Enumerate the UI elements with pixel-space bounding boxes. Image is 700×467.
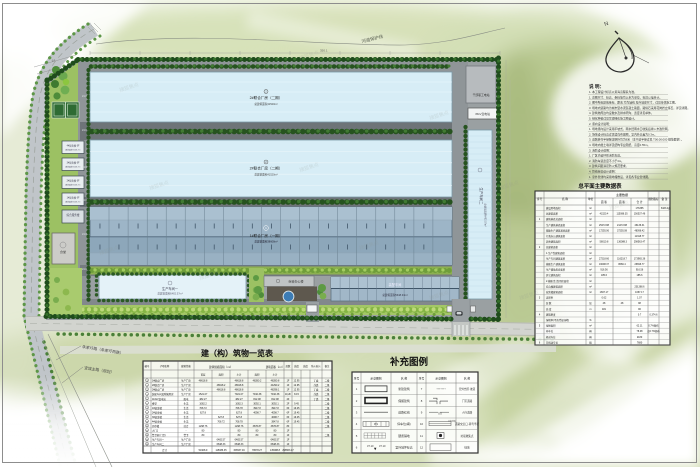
svg-text:m²: m² bbox=[589, 224, 592, 227]
svg-text:生产建筑基底面积: 生产建筑基底面积 bbox=[546, 223, 566, 227]
svg-text:708.72: 708.72 bbox=[199, 407, 207, 410]
svg-text:食堂: 食堂 bbox=[60, 249, 66, 254]
svg-text:m²: m² bbox=[589, 218, 592, 221]
svg-text:2. 竖向设计说明：: 2. 竖向设计说明： bbox=[589, 122, 612, 126]
svg-text:25472.88: 25472.88 bbox=[599, 224, 610, 227]
svg-text:1667.17: 1667.17 bbox=[635, 291, 644, 294]
svg-text:厂区道路: 厂区道路 bbox=[462, 399, 473, 403]
svg-text:156537.46: 156537.46 bbox=[233, 449, 245, 452]
svg-text:人行道路: 人行道路 bbox=[462, 411, 473, 415]
svg-text:2. 图中所标建筑坐标、距离 均为轴线 及外墙皮尺寸，详见单: 2. 图中所标建筑坐标、距离 均为轴线 及外墙皮尺寸，详见单体施工图。 bbox=[589, 101, 678, 105]
svg-text:8680.4: 8680.4 bbox=[618, 263, 626, 266]
svg-text:4. 管线综合设计说明：: 4. 管线综合设计说明： bbox=[589, 170, 617, 174]
svg-text:2#联合厂房: 2#联合厂房 bbox=[152, 388, 165, 392]
svg-text:其他建筑面积: 其他建筑面积 bbox=[546, 240, 561, 244]
svg-text:综合服务楼: 综合服务楼 bbox=[67, 213, 80, 217]
svg-text:总建筑面积41520m²: 总建筑面积41520m² bbox=[254, 173, 277, 177]
svg-text:44290.2: 44290.2 bbox=[271, 384, 280, 387]
svg-text:27218.66: 27218.66 bbox=[599, 257, 610, 260]
svg-text:48096.42: 48096.42 bbox=[635, 229, 646, 232]
svg-text:37.10: 37.10 bbox=[367, 444, 374, 448]
svg-text:生产厂房: 生产厂房 bbox=[181, 379, 191, 383]
svg-text:1. 场地竖向设计采用平坡式，雨水经雨水口收集后排入市政管网: 1. 场地竖向设计采用平坡式，雨水经雨水口收集后排入市政管网。 bbox=[589, 127, 670, 131]
svg-text:装配车间: 装配车间 bbox=[389, 282, 402, 287]
svg-text:单位: 单位 bbox=[588, 197, 594, 201]
svg-text:2. 消防车道宽度不小于4m。: 2. 消防车道宽度不小于4m。 bbox=[589, 159, 624, 163]
svg-text:4. 建筑物周边均设散水及排水明沟，宽度详见单体。: 4. 建筑物周边均设散水及排水明沟，宽度详见单体。 bbox=[589, 111, 654, 115]
svg-text:绿地面积: 绿地面积 bbox=[546, 324, 556, 328]
svg-text:m²: m² bbox=[589, 246, 592, 249]
svg-text:m²: m² bbox=[589, 263, 592, 266]
svg-text:生产厂房: 生产厂房 bbox=[181, 392, 191, 396]
svg-text:示意图例: 示意图例 bbox=[370, 377, 381, 381]
svg-text:9T1: 9T1 bbox=[374, 423, 379, 426]
svg-text:3. 建筑间距满足防火规范要求。: 3. 建筑间距满足防火规范要求。 bbox=[589, 164, 628, 168]
svg-text:停车位: 停车位 bbox=[546, 329, 554, 333]
svg-text:硬质铺地: 硬质铺地 bbox=[398, 433, 410, 438]
svg-text:二级: 二级 bbox=[325, 433, 330, 437]
svg-text:总建筑面积: 总建筑面积 bbox=[546, 245, 559, 249]
svg-text:2.辅助(生活)用房面积: 2.辅助(生活)用房面积 bbox=[546, 279, 569, 283]
svg-text:6848.33: 6848.33 bbox=[217, 443, 226, 446]
svg-text:482.27: 482.27 bbox=[235, 398, 243, 401]
svg-text:19.45: 19.45 bbox=[294, 411, 301, 414]
svg-text:3876.87: 3876.87 bbox=[253, 425, 262, 428]
svg-text:名 称: 名 称 bbox=[562, 197, 568, 201]
svg-text:185.6: 185.6 bbox=[601, 274, 608, 277]
svg-text:建筑规模面积（m²）: 建筑规模面积（m²） bbox=[209, 365, 233, 369]
svg-text:容积率: 容积率 bbox=[546, 296, 554, 300]
svg-text:序号: 序号 bbox=[354, 377, 360, 381]
svg-text:TTTTTTT: TTTTTTT bbox=[436, 388, 446, 390]
svg-text:二级: 二级 bbox=[325, 424, 330, 428]
svg-text:3947.8: 3947.8 bbox=[253, 407, 261, 410]
svg-text:辅助生产建筑面积: 辅助生产建筑面积 bbox=[546, 262, 566, 266]
svg-text:1#联合厂房（一期）: 1#联合厂房（一期） bbox=[250, 233, 283, 238]
svg-text:m²: m² bbox=[589, 229, 592, 232]
svg-text:115086.35: 115086.35 bbox=[215, 449, 227, 452]
svg-text:二级: 二级 bbox=[325, 401, 330, 405]
svg-text:m²: m² bbox=[589, 241, 592, 244]
svg-text:48618.8: 48618.8 bbox=[235, 389, 244, 392]
svg-text:48280.8: 48280.8 bbox=[271, 380, 280, 383]
svg-text:708.78: 708.78 bbox=[235, 420, 243, 423]
svg-text:916.56: 916.56 bbox=[600, 269, 608, 272]
svg-text:配电: 配电 bbox=[184, 397, 189, 401]
svg-text:备 注: 备 注 bbox=[662, 197, 668, 201]
svg-text:垃圾收集点: 垃圾收集点 bbox=[461, 434, 474, 438]
svg-text:4098.7: 4098.7 bbox=[271, 411, 279, 414]
svg-text:m²: m² bbox=[589, 291, 592, 294]
svg-text:482.27: 482.27 bbox=[199, 398, 207, 401]
svg-text:1521.07: 1521.07 bbox=[199, 393, 208, 396]
svg-text:面 积: 面 积 bbox=[601, 200, 607, 204]
svg-text:戊类: 戊类 bbox=[314, 392, 319, 396]
svg-text:室外地坪标高: 室外地坪标高 bbox=[395, 445, 412, 450]
svg-text:二级: 二级 bbox=[325, 397, 330, 401]
svg-text:二级: 二级 bbox=[325, 392, 330, 396]
svg-text:总建筑面积41520m²: 总建筑面积41520m² bbox=[254, 102, 277, 106]
svg-text:m²: m² bbox=[589, 257, 592, 260]
svg-text:48618.8: 48618.8 bbox=[235, 380, 244, 383]
svg-text:建筑性能: 建筑性能 bbox=[181, 364, 191, 368]
svg-text:6482.57: 6482.57 bbox=[217, 439, 226, 442]
svg-text:其它建筑面积: 其它建筑面积 bbox=[546, 273, 561, 277]
svg-text:高 度: 高 度 bbox=[546, 307, 552, 311]
svg-text:生产车间一: 生产车间一 bbox=[162, 286, 179, 291]
svg-text:生产厂房: 生产厂房 bbox=[181, 388, 191, 392]
svg-text:大门1: 大门1 bbox=[152, 428, 159, 432]
svg-text:19.45: 19.45 bbox=[294, 407, 301, 410]
svg-text:生产车间建筑面积: 生产车间建筑面积 bbox=[546, 256, 566, 260]
svg-text:4. 场地内挡土墙详见结构专业图纸，高度0.55m。: 4. 场地内挡土墙详见结构专业图纸，高度0.55m。 bbox=[589, 143, 650, 147]
svg-text:绿地: 绿地 bbox=[464, 446, 470, 450]
svg-text:总建筑面积38608m²: 总建筑面积38608m² bbox=[254, 240, 277, 244]
svg-text:1#联合厂房: 1#联合厂房 bbox=[152, 379, 165, 383]
svg-text:警卫: 警卫 bbox=[184, 433, 189, 437]
svg-text:3947.8: 3947.8 bbox=[271, 407, 279, 410]
svg-text:合 计: 合 计 bbox=[637, 200, 643, 204]
svg-text:135088.8: 135088.8 bbox=[270, 449, 281, 452]
svg-text:8.15: 8.15 bbox=[294, 393, 299, 396]
svg-text:115086.35: 115086.35 bbox=[616, 213, 628, 216]
svg-text:24.0: 24.0 bbox=[82, 95, 87, 98]
svg-text:m²: m² bbox=[589, 285, 592, 288]
svg-text:停车位(辆): 停车位(辆) bbox=[397, 421, 411, 426]
svg-text:规划指标: 规划指标 bbox=[648, 197, 659, 201]
svg-text:4098.7: 4098.7 bbox=[271, 416, 279, 419]
svg-text:丁类: 丁类 bbox=[314, 388, 319, 392]
svg-text:24.0: 24.0 bbox=[82, 129, 87, 132]
svg-text:戊类: 戊类 bbox=[314, 383, 319, 387]
svg-text:面积: 面积 bbox=[219, 373, 224, 377]
svg-text:48298.1: 48298.1 bbox=[271, 389, 280, 392]
svg-text:综合楼建筑面积: 综合楼建筑面积 bbox=[546, 284, 563, 288]
svg-text:176365: 176365 bbox=[636, 207, 645, 210]
svg-text:201368.6: 201368.6 bbox=[635, 285, 646, 288]
svg-text:名 称: 名 称 bbox=[401, 377, 408, 381]
svg-text:3#宿舍楼: 3#宿舍楼 bbox=[152, 415, 162, 419]
svg-text:生产车间二: 生产车间二 bbox=[152, 442, 165, 446]
svg-text:58010.8: 58010.8 bbox=[600, 241, 609, 244]
svg-text:二级: 二级 bbox=[325, 388, 330, 392]
svg-text:916.56: 916.56 bbox=[636, 269, 644, 272]
svg-text:首层: 首层 bbox=[201, 373, 206, 377]
svg-text:2#宿舍楼: 2#宿舍楼 bbox=[152, 410, 162, 414]
svg-text:小计: 小计 bbox=[237, 373, 242, 377]
svg-text:生产车间一: 生产车间一 bbox=[152, 438, 165, 442]
svg-text:708.72: 708.72 bbox=[217, 420, 225, 423]
svg-text:二级: 二级 bbox=[325, 383, 330, 387]
svg-text:37255.08: 37255.08 bbox=[617, 229, 628, 232]
svg-text:19.45: 19.45 bbox=[294, 416, 301, 419]
svg-text:宿舍楼建筑面积: 宿舍楼建筑面积 bbox=[546, 290, 563, 294]
svg-text:m²: m² bbox=[589, 274, 592, 277]
svg-text:1. 本工程设计标高以黄海高程系为准。: 1. 本工程设计标高以黄海高程系为准。 bbox=[589, 90, 637, 94]
svg-text:48618.8: 48618.8 bbox=[235, 384, 244, 387]
svg-text:m: m bbox=[590, 308, 592, 311]
svg-text:1298.76: 1298.76 bbox=[199, 425, 208, 428]
svg-text:4#宿舍楼: 4#宿舍楼 bbox=[152, 419, 162, 423]
svg-text:名 称: 名 称 bbox=[464, 377, 471, 381]
svg-text:绿地率(不含代征绿地): 绿地率(不含代征绿地) bbox=[546, 318, 569, 322]
svg-text:m²: m² bbox=[589, 269, 592, 272]
svg-text:m²: m² bbox=[589, 207, 592, 210]
svg-text:2#联合厂房（二期）: 2#联合厂房（二期） bbox=[250, 166, 283, 171]
svg-text:9.45: 9.45 bbox=[294, 402, 299, 405]
svg-text:481: 481 bbox=[602, 308, 607, 311]
svg-text:m²: m² bbox=[589, 325, 592, 328]
svg-text:1. 室外管线均采用地埋敷设，详见各专业管线图。: 1. 室外管线均采用地埋敷设，详见各专业管线图。 bbox=[589, 175, 651, 179]
svg-text:道路红线: 道路红线 bbox=[398, 410, 410, 415]
svg-text:防火耐火: 防火耐火 bbox=[311, 364, 321, 368]
svg-text:生活: 生活 bbox=[184, 410, 189, 414]
svg-text:51908.9: 51908.9 bbox=[199, 449, 208, 452]
svg-text:48280.2: 48280.2 bbox=[253, 380, 262, 383]
svg-text:生产厂房: 生产厂房 bbox=[181, 442, 191, 446]
svg-text:生活: 生活 bbox=[184, 401, 189, 405]
svg-text:1667.17: 1667.17 bbox=[600, 291, 609, 294]
svg-text:层数: 层数 bbox=[286, 364, 291, 368]
svg-text:警卫室(门卫): 警卫室(门卫) bbox=[152, 433, 166, 437]
svg-text:行政办公建筑面积: 行政办公建筑面积 bbox=[546, 234, 566, 238]
svg-text:6482.57: 6482.57 bbox=[235, 439, 244, 442]
svg-text:3092.1: 3092.1 bbox=[271, 402, 279, 405]
svg-text:110kV变电站: 110kV变电站 bbox=[152, 397, 166, 401]
svg-text:812.08: 812.08 bbox=[271, 398, 279, 401]
svg-text:生产辅助用房面积: 生产辅助用房面积 bbox=[546, 268, 566, 272]
svg-text:二级: 二级 bbox=[325, 415, 330, 419]
svg-text:总建筑面积6482.57m²: 总建筑面积6482.57m² bbox=[484, 203, 488, 227]
svg-text:21472.88: 21472.88 bbox=[617, 224, 628, 227]
svg-text:食堂: 食堂 bbox=[152, 401, 157, 405]
svg-text:主要数据: 主要数据 bbox=[616, 192, 628, 197]
svg-text:12.95: 12.95 bbox=[294, 389, 301, 392]
svg-text:1. 总图尺寸、标高、坐标等均以米为单位，标注以毫米计。: 1. 总图尺寸、标高、坐标等均以米为单位，标注以毫米计。 bbox=[589, 95, 662, 99]
svg-text:156537.46: 156537.46 bbox=[634, 213, 646, 216]
svg-text:1298.76: 1298.76 bbox=[235, 425, 244, 428]
svg-text:建筑密度: 建筑密度 bbox=[546, 312, 556, 316]
svg-text:道路交叉口·转弯半径: 道路交叉口·转弯半径 bbox=[455, 422, 480, 426]
svg-text:丁类: 丁类 bbox=[314, 379, 319, 383]
svg-text:37.10: 37.10 bbox=[379, 444, 386, 448]
svg-text:m²: m² bbox=[589, 235, 592, 238]
svg-text:3. 场地内道路均为城市型水泥混凝土路面，路缘石采用花岗岩立: 3. 场地内道路均为城市型水泥混凝土路面，路缘石采用花岗岩立缘石，详见详图。 bbox=[589, 106, 690, 110]
svg-text:序号: 序号 bbox=[419, 377, 425, 381]
svg-text:48618.8: 48618.8 bbox=[217, 389, 226, 392]
svg-text:生活: 生活 bbox=[184, 419, 189, 423]
svg-text:627.8: 627.8 bbox=[200, 411, 207, 414]
svg-text:总建筑面积: 总建筑面积 bbox=[546, 212, 559, 216]
svg-text:708.78: 708.78 bbox=[235, 407, 243, 410]
svg-text:m²: m² bbox=[589, 280, 592, 283]
svg-text:生产厂房: 生产厂房 bbox=[181, 383, 191, 387]
svg-text:高度: 高度 bbox=[294, 364, 299, 368]
svg-text:26696.77: 26696.77 bbox=[635, 263, 646, 266]
svg-text:5. 绿化种植详见景观绿化施工图设计。: 5. 绿化种植详见景观绿化施工图设计。 bbox=[589, 117, 637, 121]
svg-text:建设用地面积: 建设用地面积 bbox=[546, 206, 561, 210]
svg-text:24.0: 24.0 bbox=[82, 268, 87, 271]
svg-text:3876.87: 3876.87 bbox=[271, 425, 280, 428]
svg-text:6848.33: 6848.33 bbox=[235, 443, 244, 446]
svg-text:11: 11 bbox=[420, 434, 423, 438]
svg-text:合计: 合计 bbox=[162, 448, 168, 452]
svg-text:综合: 综合 bbox=[184, 424, 189, 428]
svg-text:7680: 7680 bbox=[637, 341, 643, 344]
svg-text:岗亭楼: 岗亭楼 bbox=[152, 424, 160, 428]
svg-text:二级: 二级 bbox=[325, 379, 330, 383]
svg-text:1. 厂区内设环形消防车道。: 1. 厂区内设环形消防车道。 bbox=[589, 154, 623, 158]
svg-text:46136.31: 46136.31 bbox=[635, 224, 646, 227]
svg-text:1082.2: 1082.2 bbox=[199, 402, 207, 405]
svg-text:生活: 生活 bbox=[184, 406, 189, 410]
svg-text:1#宿舍楼: 1#宿舍楼 bbox=[152, 406, 162, 410]
svg-text:3092.1: 3092.1 bbox=[253, 402, 261, 405]
svg-text:编号: 编号 bbox=[145, 364, 150, 368]
svg-text:173965.36: 173965.36 bbox=[634, 257, 646, 260]
svg-text:11318.77: 11318.77 bbox=[635, 235, 645, 238]
svg-text:48618.8: 48618.8 bbox=[199, 380, 208, 383]
svg-text:1F,2F: 1F,2F bbox=[285, 393, 292, 396]
svg-text:1.生产性建筑面积: 1.生产性建筑面积 bbox=[546, 251, 565, 255]
svg-text:12.95: 12.95 bbox=[294, 380, 301, 383]
svg-text:非机动车位: 非机动车位 bbox=[546, 340, 559, 344]
svg-text:6848.33: 6848.33 bbox=[271, 443, 280, 446]
svg-text:建（构）筑物一览表: 建（构）筑物一览表 bbox=[200, 348, 274, 358]
svg-text:2#联合厂房（二期）: 2#联合厂房（二期） bbox=[250, 95, 283, 100]
svg-text:812.08: 812.08 bbox=[253, 398, 261, 401]
svg-text:10: 10 bbox=[420, 422, 424, 426]
svg-text:0.7%颁布: 0.7%颁布 bbox=[648, 324, 659, 328]
svg-text:建筑基底总面积: 建筑基底总面积 bbox=[546, 217, 563, 221]
svg-text:17255.06: 17255.06 bbox=[599, 229, 610, 232]
svg-text:保留建筑: 保留建筑 bbox=[398, 398, 410, 403]
svg-text:16098.37: 16098.37 bbox=[599, 263, 610, 266]
svg-text:350.1: 350.1 bbox=[320, 49, 328, 53]
svg-text:总建筑面积6482.57m²: 总建筑面积6482.57m² bbox=[157, 292, 183, 296]
svg-text:6482.57: 6482.57 bbox=[271, 439, 280, 442]
svg-text:2#联合厂房: 2#联合厂房 bbox=[152, 383, 165, 387]
svg-text:示意图例: 示意图例 bbox=[435, 377, 446, 381]
svg-text:m²: m² bbox=[589, 252, 592, 255]
svg-text:24.0: 24.0 bbox=[82, 166, 87, 169]
svg-text:41520.4: 41520.4 bbox=[600, 213, 609, 216]
svg-text:补充图例: 补充图例 bbox=[389, 356, 428, 368]
svg-text:627.8: 627.8 bbox=[236, 416, 243, 419]
svg-text:3. 消防设计说明：: 3. 消防设计说明： bbox=[589, 148, 612, 152]
svg-text:12.95: 12.95 bbox=[294, 384, 301, 387]
svg-text:78678.27: 78678.27 bbox=[252, 449, 263, 452]
svg-text:生产厂房: 生产厂房 bbox=[181, 438, 191, 442]
svg-text:24.0: 24.0 bbox=[82, 233, 87, 236]
svg-text:7910.38: 7910.38 bbox=[271, 393, 280, 396]
svg-text:生活: 生活 bbox=[184, 415, 189, 419]
svg-text:室外台阶·坡道: 室外台阶·坡道 bbox=[459, 387, 476, 391]
svg-text:综合办公楼: 综合办公楼 bbox=[288, 279, 303, 284]
svg-text:2180: 2180 bbox=[637, 336, 643, 339]
svg-text:小计: 小计 bbox=[273, 373, 278, 377]
svg-text:建筑面积（m²）: 建筑面积（m²） bbox=[266, 365, 285, 369]
svg-text:8163.4亩: 8163.4亩 bbox=[661, 206, 671, 210]
svg-text:3947.8: 3947.8 bbox=[271, 420, 279, 423]
svg-text:总建筑面积5648.33m²: 总建筑面积5648.33m² bbox=[382, 293, 408, 297]
svg-text:627.8: 627.8 bbox=[218, 416, 225, 419]
svg-text:丁类: 丁类 bbox=[314, 397, 319, 401]
svg-text:12: 12 bbox=[420, 446, 424, 450]
svg-text:序号: 序号 bbox=[537, 197, 543, 201]
svg-text:干部职工电站: 干部职工电站 bbox=[473, 93, 490, 97]
svg-text:136088.3: 136088.3 bbox=[617, 241, 628, 244]
svg-text:2. 场地设计标高详见竖向布置图，室内外高差为0.3m。: 2. 场地设计标高详见竖向布置图，室内外高差为0.3m。 bbox=[589, 132, 657, 136]
svg-text:298563.47: 298563.47 bbox=[282, 449, 294, 452]
svg-text:机动车位: 机动车位 bbox=[546, 335, 556, 339]
svg-text:78.08: 78.08 bbox=[637, 330, 644, 333]
svg-text:子项名称: 子项名称 bbox=[160, 364, 170, 368]
svg-text:装配车间及附属用房: 装配车间及附属用房 bbox=[152, 392, 174, 396]
svg-text:层 数: 层 数 bbox=[546, 301, 552, 305]
svg-text:生产车间二: 生产车间二 bbox=[479, 188, 484, 206]
svg-text:7921.07: 7921.07 bbox=[235, 393, 244, 396]
svg-text:新建建筑: 新建建筑 bbox=[398, 386, 410, 391]
svg-text:二级: 二级 bbox=[325, 419, 330, 423]
svg-text:0.62: 0.62 bbox=[602, 297, 607, 300]
svg-text:二级: 二级 bbox=[325, 410, 330, 414]
svg-text:24.0: 24.0 bbox=[82, 199, 87, 202]
svg-text:185.6: 185.6 bbox=[637, 274, 644, 277]
svg-text:35kV变电站: 35kV变电站 bbox=[475, 112, 490, 116]
svg-text:说 明：: 说 明： bbox=[589, 83, 604, 90]
svg-text:1.07: 1.07 bbox=[637, 297, 642, 300]
svg-text:面积: 面积 bbox=[255, 373, 260, 377]
svg-text:116218.7: 116218.7 bbox=[617, 257, 627, 260]
svg-text:4098.7: 4098.7 bbox=[253, 411, 261, 414]
svg-text:48618.2: 48618.2 bbox=[217, 384, 226, 387]
svg-text:62.11: 62.11 bbox=[637, 325, 643, 328]
svg-text:备注: 备注 bbox=[325, 364, 330, 368]
svg-text:辅助生产建筑基底面积: 辅助生产建筑基底面积 bbox=[546, 228, 571, 232]
svg-text:7910.38: 7910.38 bbox=[253, 393, 262, 396]
svg-text:二级: 二级 bbox=[325, 406, 330, 410]
svg-text:627.8: 627.8 bbox=[236, 411, 243, 414]
svg-text:3. 道路转弯半径除注明外均为9米（主干道半径详见 T00:: 3. 道路转弯半径除注明外均为9米（主干道半径详见 T00:00:000 规范要… bbox=[589, 138, 684, 142]
svg-text:0.374.6: 0.374.6 bbox=[650, 313, 659, 316]
svg-text:19.45: 19.45 bbox=[294, 420, 301, 423]
svg-text:m²: m² bbox=[589, 213, 592, 216]
svg-text:298563.47: 298563.47 bbox=[634, 241, 646, 244]
svg-text:总0.7%颁布: 总0.7%颁布 bbox=[647, 329, 660, 333]
svg-text:1082.3: 1082.3 bbox=[235, 402, 243, 405]
svg-text:高度: 高度 bbox=[303, 364, 308, 368]
svg-text:总平面主要数据表: 总平面主要数据表 bbox=[578, 182, 622, 190]
